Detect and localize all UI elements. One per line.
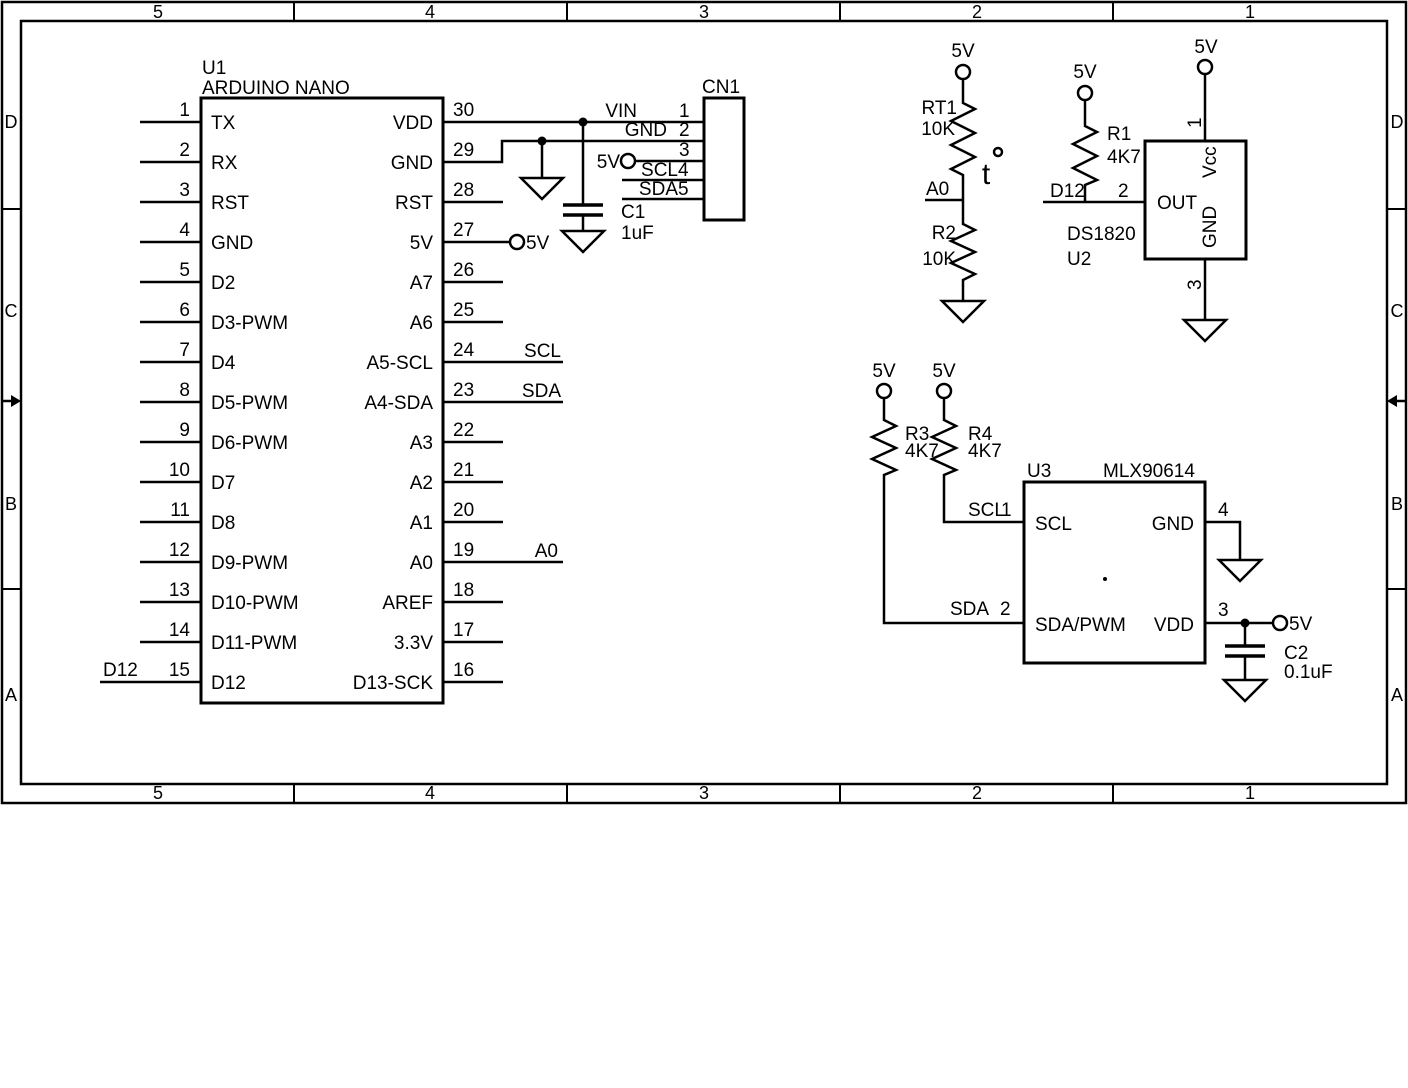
u2-pin-number: 1 <box>1185 117 1206 128</box>
u1-pin-label: D13-SCK <box>353 673 434 694</box>
u1-pin-label: A3 <box>410 433 433 454</box>
ground-symbol-icon <box>1184 320 1226 341</box>
u1-pin-label: 3.3V <box>394 633 433 654</box>
u1-pin-number: 14 <box>169 620 191 641</box>
u1-pin-number: 30 <box>453 100 474 121</box>
u3-pin-number: 2 <box>1000 599 1011 620</box>
power-label-5v: 5V <box>872 361 896 382</box>
net-label-d12: D12 <box>103 660 138 681</box>
frame-col-label: 5 <box>153 783 163 803</box>
frame-col-label: 2 <box>972 2 982 22</box>
u1-pin-label: D5-PWM <box>211 393 288 414</box>
u1-pin-number: 20 <box>453 500 474 521</box>
thermistor-t-mark: t <box>982 158 991 191</box>
net-label-vin: VIN <box>605 101 637 122</box>
wire <box>1205 522 1240 560</box>
cn1-refdes: CN1 <box>702 77 740 98</box>
frame-col-label: 3 <box>699 783 709 803</box>
u1-pin-number: 5 <box>179 260 190 281</box>
u1-pin-label: A5-SCL <box>366 353 433 374</box>
net-label-a0: A0 <box>535 541 558 562</box>
u1-pin-label: D10-PWM <box>211 593 299 614</box>
ds1820-circuit: 5V R1 4K7 D12 2 5V 1 Vcc OUT GND DS1820 … <box>1043 37 1246 341</box>
u1-pin-number: 17 <box>453 620 474 641</box>
frame-row-label: A <box>5 685 17 705</box>
r1-value: 4K7 <box>1107 147 1141 168</box>
u2-part-name: DS1820 <box>1067 224 1136 245</box>
r1-refdes: R1 <box>1107 124 1131 145</box>
ground-symbol-icon <box>521 178 563 199</box>
u1-pin-number: 7 <box>179 340 190 361</box>
frame-row-label: A <box>1391 685 1403 705</box>
power-terminal-icon <box>621 154 635 168</box>
u3-pin-number: 4 <box>1218 500 1229 521</box>
c2-value: 0.1uF <box>1284 662 1333 683</box>
u3-pin-number: 1 <box>1001 500 1012 521</box>
frame-col-label: 3 <box>699 2 709 22</box>
u1-pin-label: RST <box>395 193 433 214</box>
u1-pin-number: 26 <box>453 260 474 281</box>
power-label-5v: 5V <box>932 361 956 382</box>
u1-pin-label: D6-PWM <box>211 433 288 454</box>
u3-pin-label: SDA/PWM <box>1035 615 1126 636</box>
u1-pin-label: AREF <box>382 593 433 614</box>
u1-pin-label: D7 <box>211 473 235 494</box>
u1-pin-label: D3-PWM <box>211 313 288 334</box>
u1-pin-label: A0 <box>410 553 433 574</box>
u3-pin-label: SCL <box>1035 514 1072 535</box>
r2-value: 10K <box>922 249 956 270</box>
u3-pin-number: 3 <box>1218 600 1229 621</box>
r4-value: 4K7 <box>968 441 1002 462</box>
u1-pin-number: 19 <box>453 540 474 561</box>
center-arrow-right-icon <box>1387 395 1397 407</box>
stray-dot <box>1103 577 1107 581</box>
u1-pin-number: 29 <box>453 140 474 161</box>
power-label-5v: 5V <box>526 233 550 254</box>
u1-pin-number: 8 <box>179 380 190 401</box>
power-terminal-icon <box>937 384 951 398</box>
u1-pin-number: 13 <box>169 580 190 601</box>
power-terminal-icon <box>1198 60 1212 74</box>
frame-row-label: D <box>1391 112 1404 132</box>
u1-pin-label: A2 <box>410 473 433 494</box>
net-label-scl: SCL <box>641 160 678 181</box>
power-label-5v: 5V <box>1194 37 1218 58</box>
ground-symbol-icon <box>1224 680 1266 701</box>
net-label-sda: SDA <box>522 381 561 402</box>
u1-pin-number: 18 <box>453 580 474 601</box>
u1-pin-number: 3 <box>179 180 190 201</box>
u1-pin-label: D8 <box>211 513 235 534</box>
u1-pin-number: 10 <box>169 460 190 481</box>
frame-col-label: 2 <box>972 783 982 803</box>
power-terminal-icon <box>1273 616 1287 630</box>
u1-pin-number: 6 <box>179 300 190 321</box>
cn1-body <box>704 98 744 220</box>
u1-pin-number: 9 <box>179 420 190 441</box>
c1-value: 1uF <box>621 223 654 244</box>
u2-refdes: U2 <box>1067 249 1091 270</box>
u1-pin-number: 21 <box>453 460 474 481</box>
power-terminal-icon <box>956 65 970 79</box>
u1-refdes: U1 <box>202 58 226 79</box>
schematic-canvas: 5 4 3 2 1 5 4 3 2 1 D C B A D C B A U1 A… <box>0 0 1408 1088</box>
schematic-page: 5 4 3 2 1 5 4 3 2 1 D C B A D C B A U1 A… <box>0 0 1408 1088</box>
net-label-d12: D12 <box>1050 181 1085 202</box>
power-label-5v: 5V <box>1073 62 1097 83</box>
ground-symbol-icon <box>1219 560 1261 581</box>
u2-pin-label: Vcc <box>1200 146 1221 178</box>
u1-pin-label: D12 <box>211 673 246 694</box>
frame-col-label: 5 <box>153 2 163 22</box>
frame-row-label: C <box>5 301 18 321</box>
u1-pin-label: A6 <box>410 313 433 334</box>
u1-pin-label: 5V <box>410 233 434 254</box>
u1-pin-number: 15 <box>169 660 190 681</box>
cn1-pin-number: 1 <box>679 101 690 122</box>
net-label-sda: SDA <box>950 599 989 620</box>
u1-pin-label: D9-PWM <box>211 553 288 574</box>
u1-pin-number: 11 <box>170 500 190 521</box>
u1-pin-number: 25 <box>453 300 474 321</box>
resistor-r1-icon <box>1073 120 1097 190</box>
u1-pin-number: 12 <box>169 540 190 561</box>
net-label-scl: SCL <box>968 500 1005 521</box>
u1-pin-label: TX <box>211 113 236 134</box>
frame-row-label: C <box>1391 301 1404 321</box>
power-label-5v: 5V <box>951 41 975 62</box>
center-arrow-left-icon <box>11 395 21 407</box>
frame-col-label: 1 <box>1245 783 1255 803</box>
ground-symbol-icon <box>942 301 984 322</box>
u3-refdes: U3 <box>1027 461 1051 482</box>
u1-pin-label: A7 <box>410 273 433 294</box>
u1-pin-label: D2 <box>211 273 235 294</box>
u1-pin-label: D4 <box>211 353 236 374</box>
thermistor-divider: 5V RT1 10K t A0 R2 10K <box>921 41 1002 322</box>
cn1-pin-number: 4 <box>678 160 689 181</box>
u1-pin-label: A1 <box>410 513 433 534</box>
u1-pin-label: GND <box>211 233 253 254</box>
u1-part-name: ARDUINO NANO <box>202 78 350 99</box>
u2-pin-label: OUT <box>1157 193 1198 214</box>
cn1-pin-number: 3 <box>679 140 690 161</box>
frame-col-label: 4 <box>425 2 435 22</box>
mlx90614-circuit: 5V R3 4K7 5V R4 4K7 SCL 1 SDA 2 U3 MLX90… <box>872 361 1333 701</box>
frame-col-label: 4 <box>425 783 435 803</box>
power-terminal-icon <box>510 235 524 249</box>
u1-pin-number: 23 <box>453 380 474 401</box>
u1-pin-number: 4 <box>179 220 190 241</box>
u3-pin-label: GND <box>1152 514 1194 535</box>
net-label-gnd: GND <box>625 120 667 141</box>
u1-pin-number: 22 <box>453 420 474 441</box>
r2-refdes: R2 <box>932 223 956 244</box>
u1-pin-label: GND <box>391 153 433 174</box>
resistor-r3-icon <box>872 415 896 480</box>
u2-pin-label: GND <box>1200 206 1221 248</box>
u1-pin-label: A4-SDA <box>364 393 433 414</box>
net-label-a0: A0 <box>926 179 949 200</box>
u1-pin-label: D11-PWM <box>211 633 297 654</box>
u1-pin-number: 24 <box>453 340 475 361</box>
wire-gnd <box>443 141 704 162</box>
frame-col-label: 1 <box>1245 2 1255 22</box>
power-terminal-icon <box>877 384 891 398</box>
u1-pin-number: 2 <box>179 140 190 161</box>
ground-symbol-icon <box>562 231 604 252</box>
power-label-5v: 5V <box>597 152 621 173</box>
power-label-5v: 5V <box>1289 614 1313 635</box>
cn1-pin-number: 2 <box>679 120 690 141</box>
rt1-refdes: RT1 <box>921 98 957 119</box>
u1-pin-label: VDD <box>393 113 433 134</box>
u1-pin-number: 16 <box>453 660 474 681</box>
frame-row-label: B <box>5 494 17 514</box>
thermistor-degree-icon <box>994 148 1002 156</box>
u1-pin-number: 28 <box>453 180 474 201</box>
cn1-connector: CN1 VIN GND 5V SCL SDA 1 2 3 4 5 <box>597 77 744 220</box>
u2-pin-number: 2 <box>1118 181 1129 202</box>
net-label-sda: SDA <box>639 179 678 200</box>
net-label-scl: SCL <box>524 341 561 362</box>
frame-row-label: B <box>1391 494 1403 514</box>
u3-part-name: MLX90614 <box>1103 461 1195 482</box>
c2-refdes: C2 <box>1284 643 1308 664</box>
c1-refdes: C1 <box>621 202 645 223</box>
u1-pin-number: 1 <box>179 100 190 121</box>
rt1-value: 10K <box>921 119 955 140</box>
u2-pin-number: 3 <box>1185 279 1206 290</box>
u1-pin-number: 27 <box>453 220 474 241</box>
frame-row-label: D <box>5 112 18 132</box>
cn1-pin-number: 5 <box>678 179 689 200</box>
u3-pin-label: VDD <box>1154 615 1194 636</box>
u1-pin-label: RX <box>211 153 238 174</box>
u1-pin-label: RST <box>211 193 249 214</box>
power-terminal-icon <box>1078 86 1092 100</box>
